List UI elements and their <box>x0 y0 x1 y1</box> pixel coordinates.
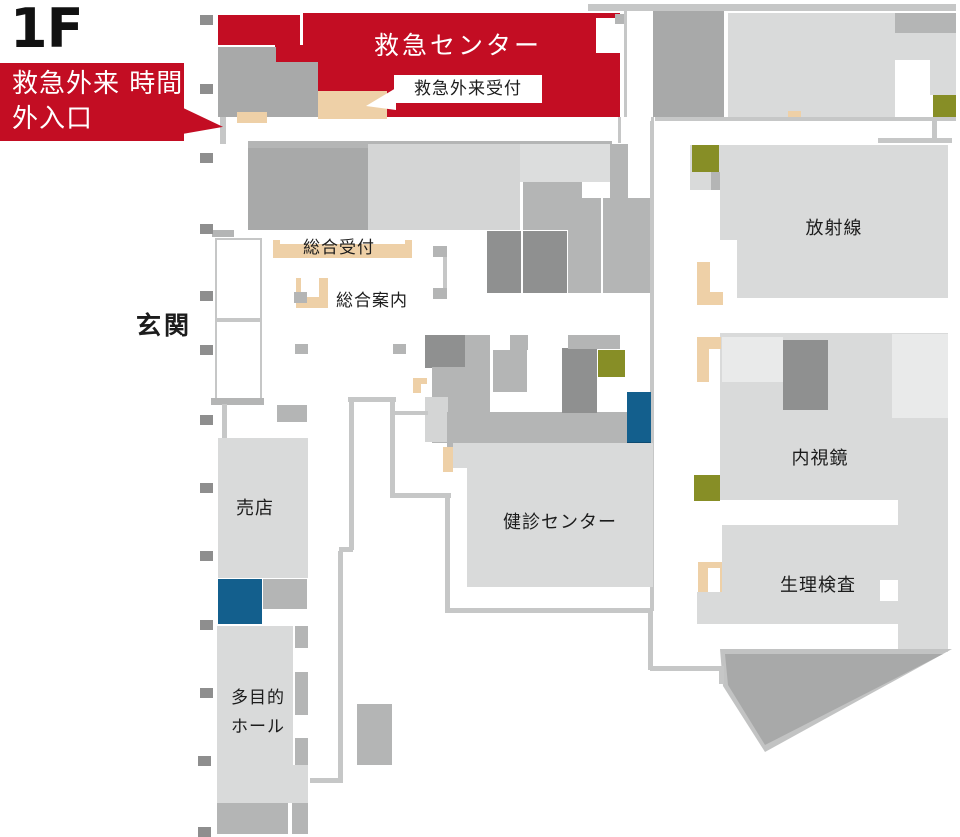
map-block <box>930 60 956 95</box>
map-block <box>610 144 628 198</box>
emergency-entrance-callout-text: 救急外来 時間外入口 <box>0 67 184 137</box>
wall-tick <box>200 483 213 493</box>
checkup-center-label: 健診センター <box>500 513 620 533</box>
wall-line <box>310 778 342 783</box>
map-block <box>263 579 307 609</box>
wall-line <box>338 551 343 783</box>
wall-line <box>932 120 937 138</box>
wall-line <box>222 404 227 438</box>
wall-line <box>394 411 428 415</box>
blue-marker <box>218 579 262 624</box>
wall-line <box>719 670 724 684</box>
map-block <box>603 198 650 293</box>
map-block <box>520 144 610 182</box>
map-block <box>722 337 783 382</box>
map-block <box>295 344 308 354</box>
endoscopy-label: 内視鏡 <box>770 449 870 469</box>
olive-marker <box>692 145 719 172</box>
floor-label: 1F <box>10 2 82 56</box>
map-block <box>562 348 597 413</box>
map-block <box>465 335 490 368</box>
wall-tick <box>198 756 211 766</box>
physiology-label: 生理検査 <box>758 576 878 596</box>
wall-line <box>390 493 451 498</box>
map-block <box>510 335 528 350</box>
wall-line <box>349 397 354 550</box>
wall-tick <box>200 415 213 425</box>
wall-line <box>445 497 450 612</box>
map-block <box>275 62 318 117</box>
wall-tick <box>200 620 213 630</box>
beige-marker <box>237 112 267 123</box>
olive-marker <box>694 475 720 501</box>
wall-line <box>445 608 653 613</box>
map-block <box>447 412 627 447</box>
wall-line <box>588 4 956 11</box>
emergency-center-room-step <box>275 45 305 63</box>
wall-line <box>624 11 627 117</box>
radiology-label: 放射線 <box>784 219 884 239</box>
general-information-label: 総合案内 <box>327 291 417 311</box>
map-block <box>425 335 465 368</box>
map-block <box>218 47 276 117</box>
general-reception-counter <box>405 240 412 258</box>
map-block <box>892 334 948 418</box>
wall-line <box>655 117 956 121</box>
olive-marker <box>933 95 956 117</box>
wall-tick <box>200 551 213 561</box>
map-notch <box>880 580 898 601</box>
map-block <box>393 344 406 354</box>
wall-line <box>348 397 396 402</box>
wall-line <box>650 666 724 671</box>
wall-line <box>878 138 952 143</box>
map-notch <box>708 568 720 592</box>
physiology-room-ext <box>697 592 722 624</box>
map-block <box>211 398 264 405</box>
map-notch <box>720 240 737 298</box>
general-reception-label: 総合受付 <box>284 238 394 258</box>
map-block <box>493 350 527 392</box>
beige-marker <box>413 378 421 393</box>
pillar-marker <box>433 246 447 257</box>
callout-arrow-icon <box>183 107 223 135</box>
wall-tick <box>200 291 213 301</box>
map-block <box>212 230 234 237</box>
map-block <box>295 672 308 715</box>
wall-line <box>618 117 621 143</box>
beige-marker <box>697 292 723 305</box>
map-block <box>425 397 448 442</box>
emergency-center-room-upper <box>218 15 300 45</box>
map-block <box>277 405 307 422</box>
wall-tick <box>200 84 213 94</box>
map-block <box>653 11 724 117</box>
wall-line <box>443 257 447 288</box>
map-block <box>898 500 948 525</box>
entrance-label: 玄関 <box>136 306 206 342</box>
map-block <box>895 33 956 60</box>
map-block <box>487 231 521 293</box>
map-block <box>523 231 567 293</box>
shop-label: 売店 <box>226 499 284 519</box>
wall-tick <box>200 688 213 698</box>
wall-tick <box>198 827 211 837</box>
blue-marker <box>627 392 651 442</box>
map-polygon <box>718 646 956 756</box>
olive-marker <box>598 350 625 377</box>
emergency-entrance-callout: 救急外来 時間外入口 <box>0 63 184 141</box>
map-block <box>295 738 308 765</box>
general-reception-counter <box>273 240 280 258</box>
map-block <box>292 803 308 834</box>
entrance-vestibule <box>215 320 262 400</box>
map-block <box>294 292 307 303</box>
map-block <box>783 340 828 410</box>
emergency-reception-label-box: 救急外来受付 <box>394 75 542 103</box>
map-block <box>711 172 720 190</box>
map-block <box>568 198 601 293</box>
map-block <box>357 704 392 765</box>
emergency-center-label: 救急センター <box>368 26 548 62</box>
wall-tick <box>200 15 213 25</box>
map-block <box>568 335 620 349</box>
physiology-room-ext <box>898 624 948 652</box>
entrance-vestibule <box>215 238 262 320</box>
emergency-reception-label: 救急外来受付 <box>414 79 522 99</box>
map-block <box>217 803 288 834</box>
wall-tick <box>200 153 213 163</box>
wall-line <box>220 117 226 144</box>
wall-line <box>648 612 653 670</box>
wall-tick <box>200 345 213 355</box>
map-block <box>728 13 895 117</box>
map-block <box>295 626 308 648</box>
beige-marker <box>443 447 453 472</box>
wall-tick <box>200 224 213 234</box>
beige-marker <box>697 337 709 382</box>
pillar-marker <box>433 288 447 299</box>
map-block <box>368 144 520 230</box>
multipurpose-hall-room <box>293 765 308 803</box>
map-block <box>248 148 368 230</box>
multipurpose-hall-label: 多目的 ホール <box>227 684 289 742</box>
map-block <box>895 13 956 33</box>
floor-map-1f: 1F 救急外来 時間外入口 救急センター 救急外来受付 総合受付 総合案内 玄関… <box>0 0 960 837</box>
